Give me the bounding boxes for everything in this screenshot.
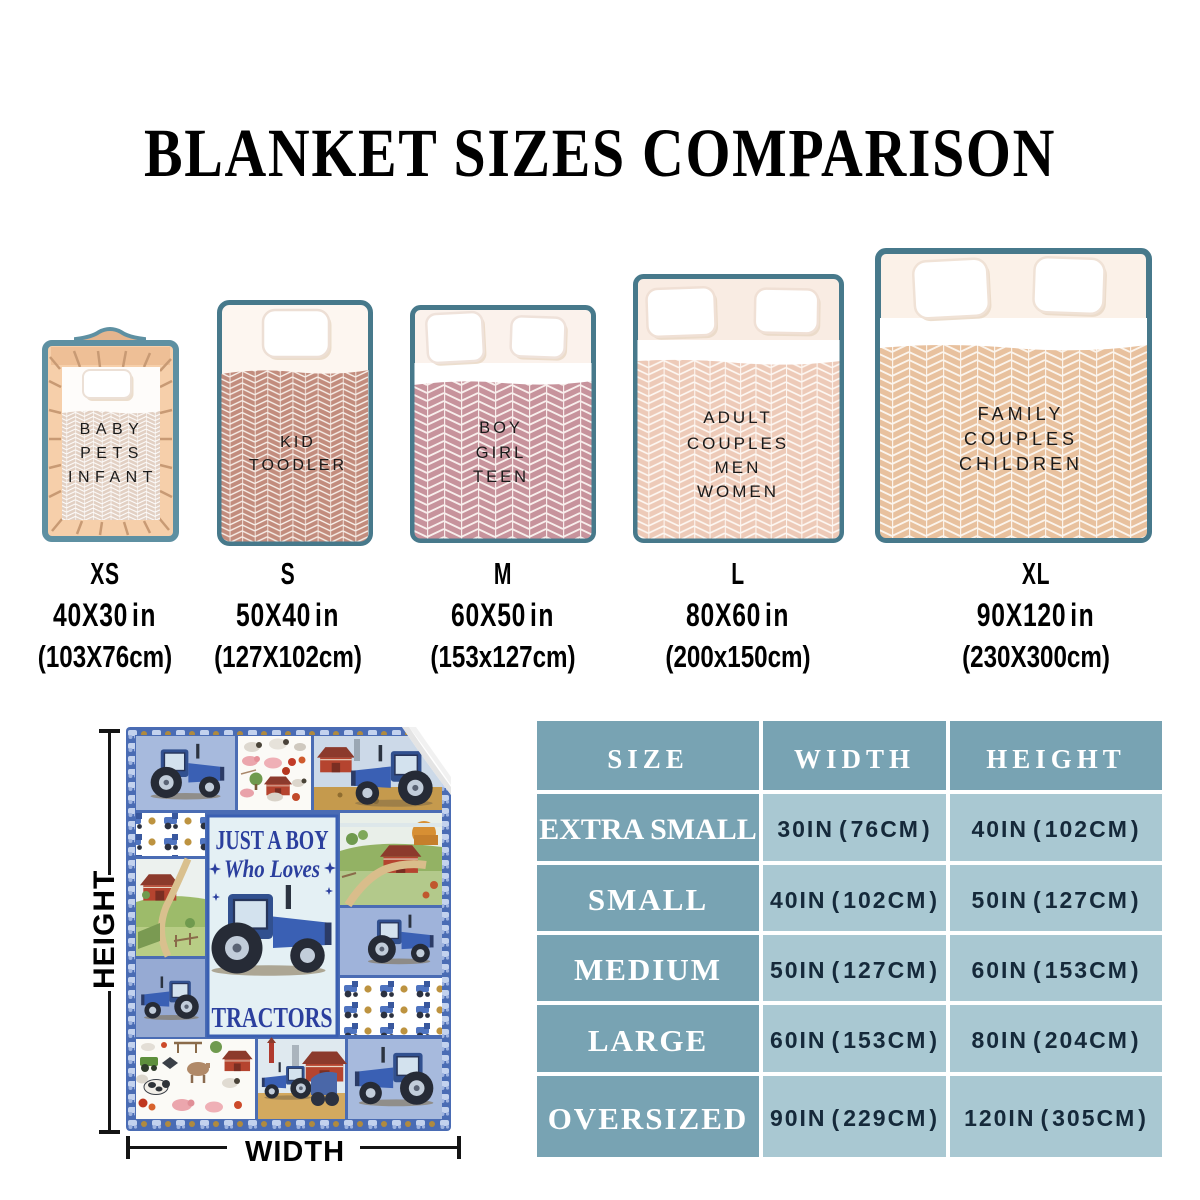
svg-text:COUPLES: COUPLES — [687, 434, 789, 453]
svg-text:JUST A BOY: JUST A BOY — [216, 825, 329, 855]
svg-text:INFANT: INFANT — [68, 469, 158, 486]
svg-text:COUPLES: COUPLES — [964, 429, 1078, 449]
svg-text:BOY: BOY — [479, 419, 523, 437]
svg-text:KID: KID — [280, 434, 316, 451]
svg-text:BABY: BABY — [80, 421, 145, 438]
svg-text:TEEN: TEEN — [473, 468, 529, 486]
svg-text:ADULT: ADULT — [703, 408, 772, 427]
svg-text:PETS: PETS — [80, 445, 144, 462]
svg-text:TOODLER: TOODLER — [249, 457, 347, 474]
svg-text:Who Loves: Who Loves — [224, 856, 320, 883]
svg-text:CHILDREN: CHILDREN — [959, 454, 1083, 474]
svg-text:WOMEN: WOMEN — [697, 482, 779, 501]
svg-text:MEN: MEN — [715, 458, 762, 477]
svg-text:GIRL: GIRL — [476, 444, 527, 462]
svg-text:FAMILY: FAMILY — [978, 404, 1065, 424]
svg-text:TRACTORS: TRACTORS — [212, 1002, 333, 1034]
